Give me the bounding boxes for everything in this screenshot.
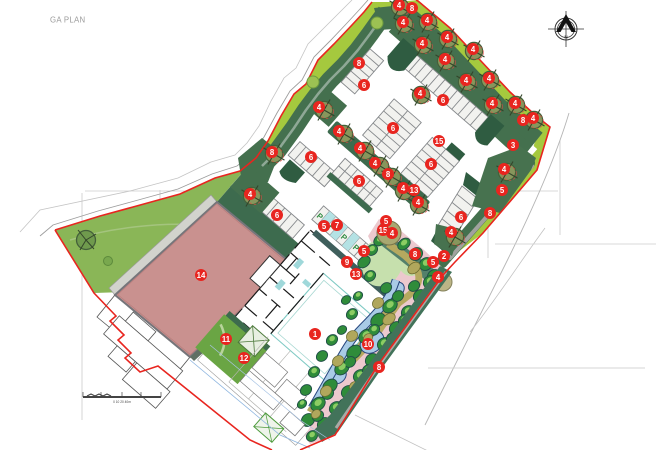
svg-text:8: 8: [377, 363, 382, 372]
svg-text:7: 7: [335, 221, 339, 230]
svg-text:5: 5: [322, 222, 327, 231]
svg-text:6: 6: [429, 160, 434, 169]
svg-text:15: 15: [435, 137, 444, 146]
svg-text:13: 13: [410, 186, 419, 195]
svg-text:4: 4: [445, 33, 450, 42]
svg-text:4: 4: [418, 89, 423, 98]
svg-text:4: 4: [531, 114, 536, 123]
svg-text:4: 4: [449, 228, 454, 237]
svg-text:5: 5: [362, 247, 367, 256]
svg-text:4: 4: [248, 190, 253, 199]
svg-text:13: 13: [352, 270, 361, 279]
svg-text:8: 8: [357, 59, 362, 68]
svg-text:0 10 20 40m: 0 10 20 40m: [113, 400, 131, 404]
svg-text:10: 10: [364, 340, 373, 349]
svg-text:4: 4: [420, 39, 425, 48]
svg-text:4: 4: [337, 127, 342, 136]
svg-text:6: 6: [275, 211, 280, 220]
svg-text:4: 4: [397, 1, 402, 10]
svg-text:2: 2: [442, 252, 447, 261]
svg-text:4: 4: [513, 99, 518, 108]
svg-text:4: 4: [416, 198, 421, 207]
svg-text:8: 8: [270, 148, 275, 157]
svg-text:8: 8: [521, 116, 526, 125]
svg-text:6: 6: [459, 213, 464, 222]
svg-text:6: 6: [357, 177, 362, 186]
svg-text:9: 9: [345, 258, 350, 267]
svg-text:4: 4: [436, 273, 441, 282]
svg-text:8: 8: [413, 250, 418, 259]
svg-text:5: 5: [500, 186, 505, 195]
svg-text:4: 4: [317, 103, 322, 112]
svg-text:GA PLAN: GA PLAN: [50, 16, 85, 25]
svg-text:4: 4: [401, 184, 406, 193]
svg-text:8: 8: [386, 170, 391, 179]
svg-text:3: 3: [511, 141, 516, 150]
svg-text:4: 4: [390, 229, 395, 238]
svg-text:4: 4: [490, 99, 495, 108]
svg-text:5: 5: [431, 258, 436, 267]
svg-text:4: 4: [401, 18, 406, 27]
svg-text:4: 4: [358, 144, 363, 153]
svg-text:6: 6: [441, 96, 446, 105]
svg-text:8: 8: [410, 4, 415, 13]
svg-text:6: 6: [309, 153, 314, 162]
svg-text:N: N: [564, 35, 567, 40]
svg-text:4: 4: [502, 165, 507, 174]
svg-text:8: 8: [488, 209, 493, 218]
svg-text:6: 6: [391, 124, 396, 133]
svg-text:4: 4: [425, 16, 430, 25]
svg-text:4: 4: [471, 45, 476, 54]
svg-text:11: 11: [222, 335, 231, 344]
svg-text:4: 4: [487, 74, 492, 83]
svg-text:14: 14: [197, 271, 206, 280]
svg-text:4: 4: [443, 55, 448, 64]
svg-text:4: 4: [373, 159, 378, 168]
svg-text:12: 12: [240, 354, 249, 363]
svg-text:4: 4: [464, 76, 469, 85]
svg-text:6: 6: [362, 81, 367, 90]
svg-text:1: 1: [313, 330, 318, 339]
